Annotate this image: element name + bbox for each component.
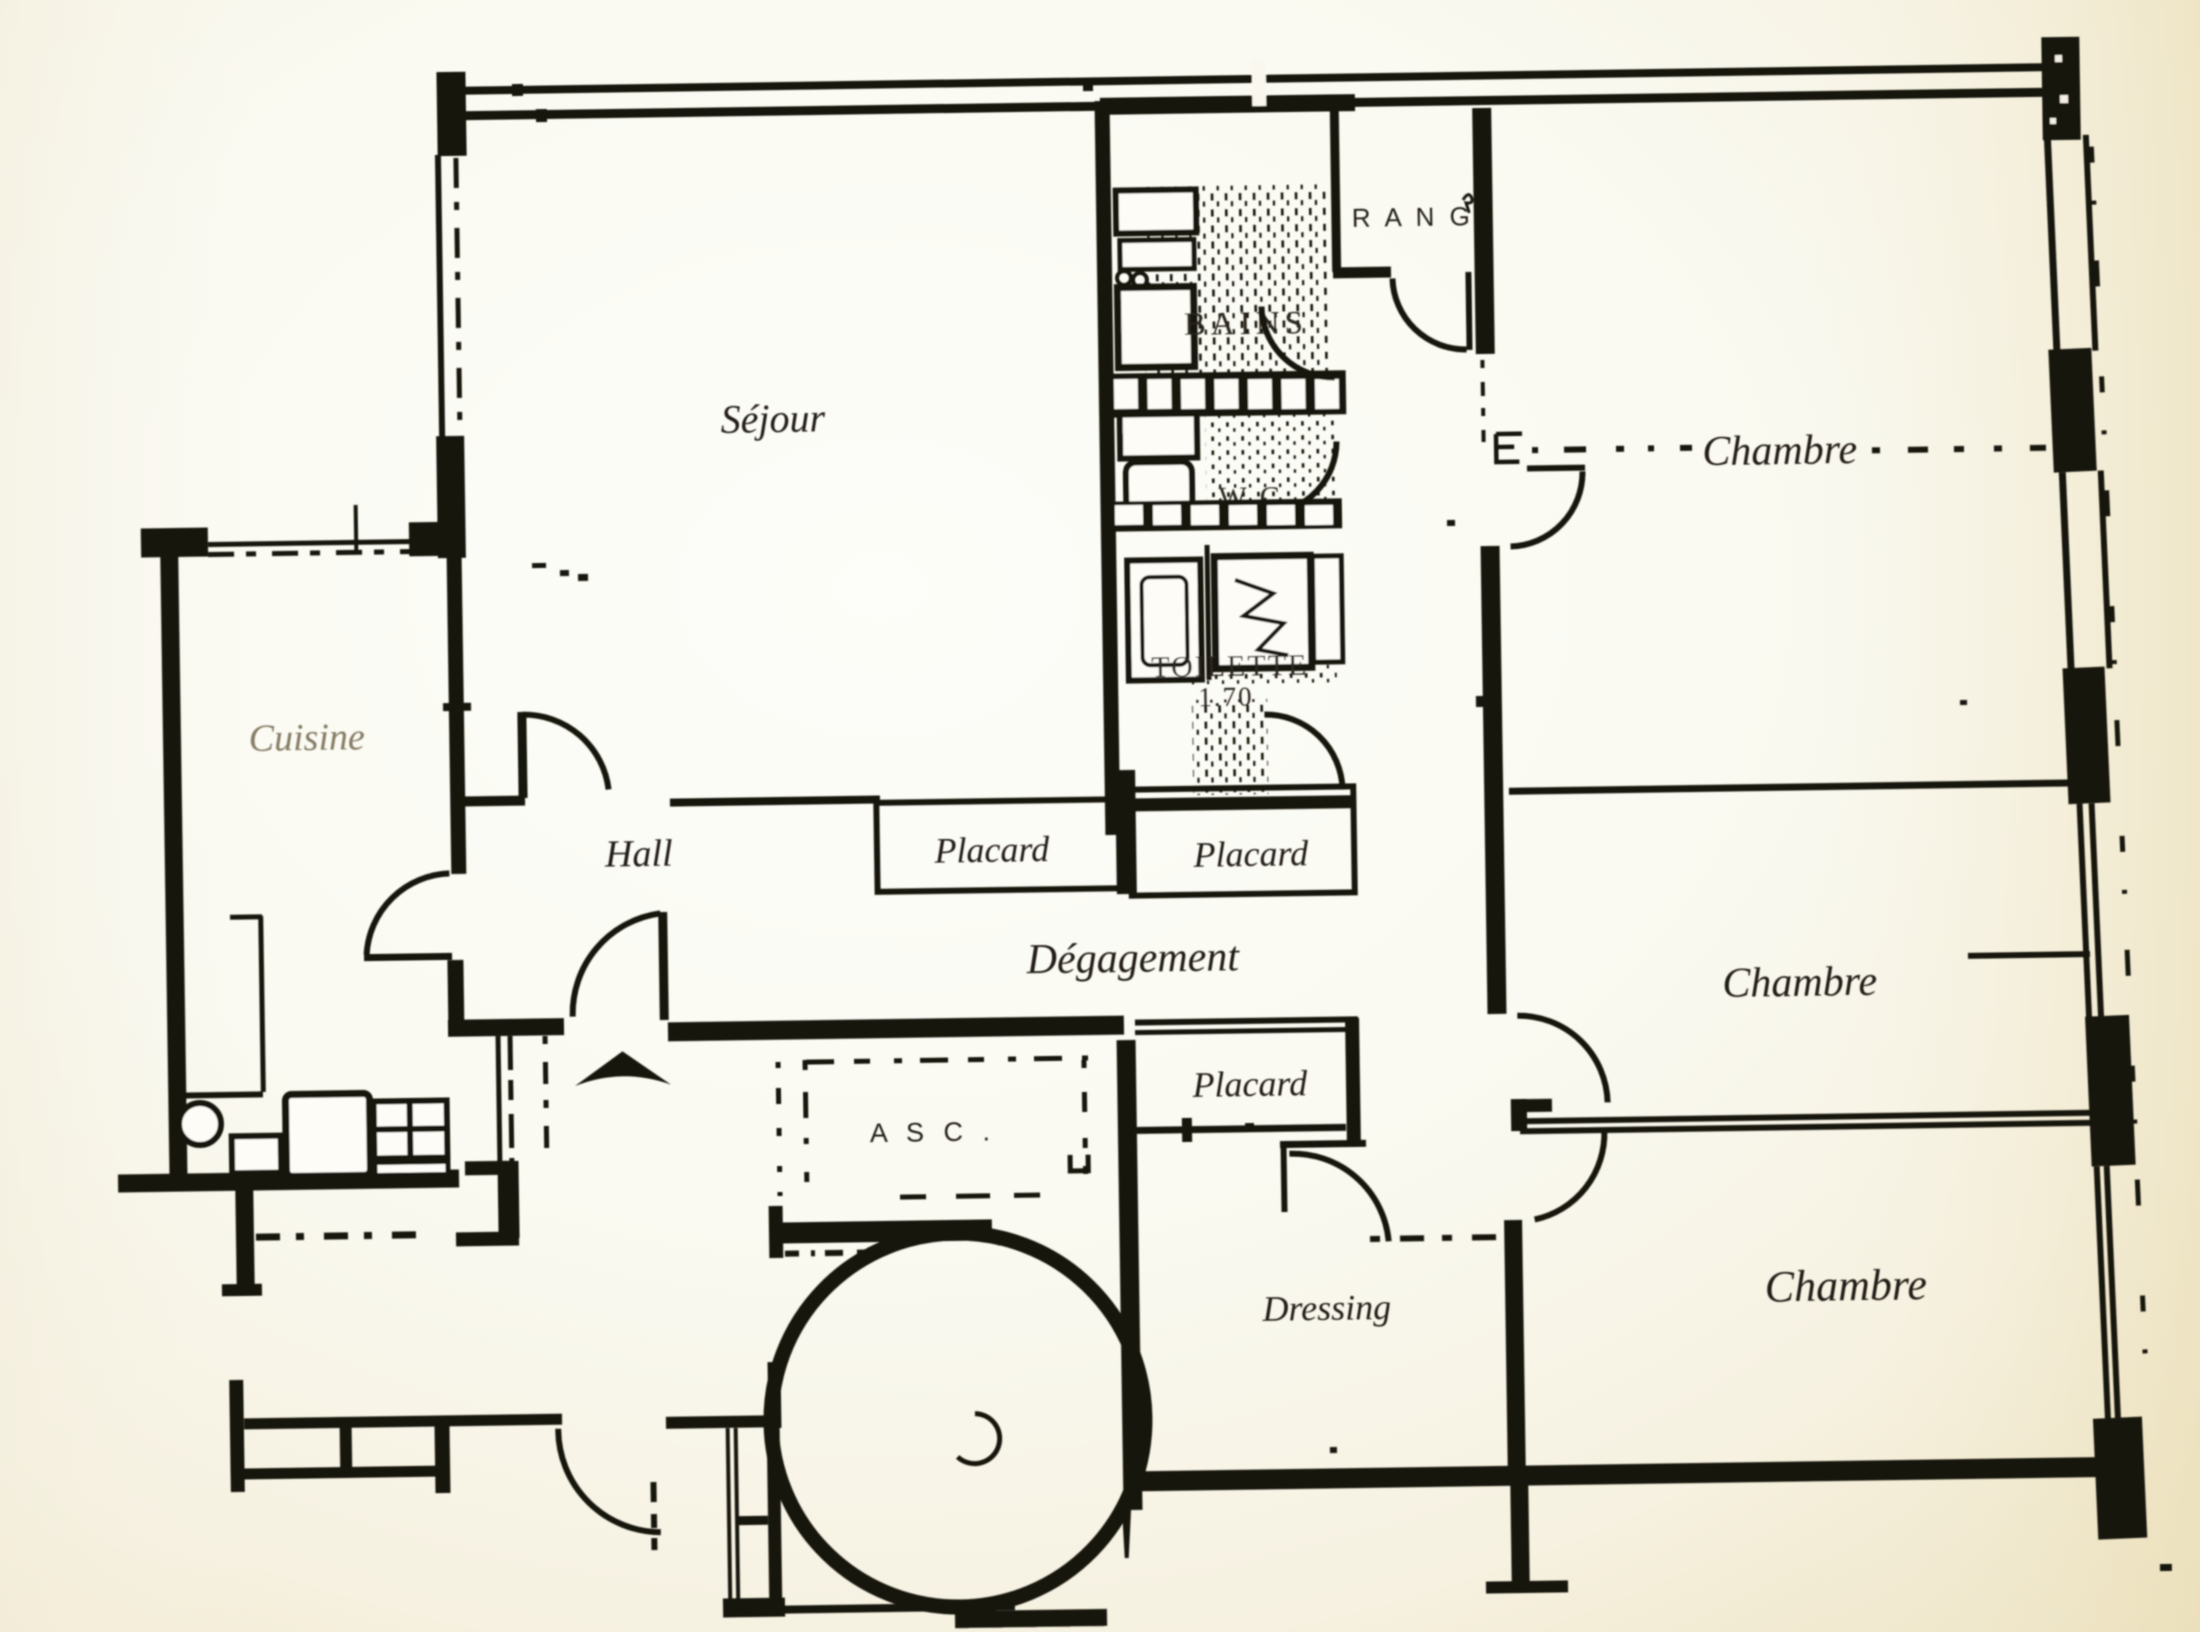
- svg-text:Chambre: Chambre: [1722, 959, 1877, 1007]
- svg-text:Dégagement: Dégagement: [1025, 934, 1240, 983]
- svg-text:Placard: Placard: [1191, 1063, 1308, 1105]
- svg-text:Chambre: Chambre: [1702, 427, 1857, 475]
- svg-text:R A N G: R A N G: [1352, 201, 1474, 233]
- svg-text:Placard: Placard: [933, 829, 1050, 871]
- svg-text:A S C .: A S C .: [870, 1116, 996, 1148]
- svg-text:TOILETTE: TOILETTE: [1151, 649, 1309, 684]
- svg-text:Cuisine: Cuisine: [248, 716, 365, 760]
- svg-text:1.70: 1.70: [1198, 682, 1254, 713]
- svg-text:Dressing: Dressing: [1261, 1287, 1391, 1329]
- svg-text:Chambre: Chambre: [1764, 1260, 1927, 1311]
- svg-text:Hall: Hall: [604, 832, 673, 875]
- svg-text:Placard: Placard: [1192, 833, 1309, 875]
- svg-text:Séjour: Séjour: [720, 395, 826, 442]
- svg-text:BAINS: BAINS: [1184, 305, 1309, 343]
